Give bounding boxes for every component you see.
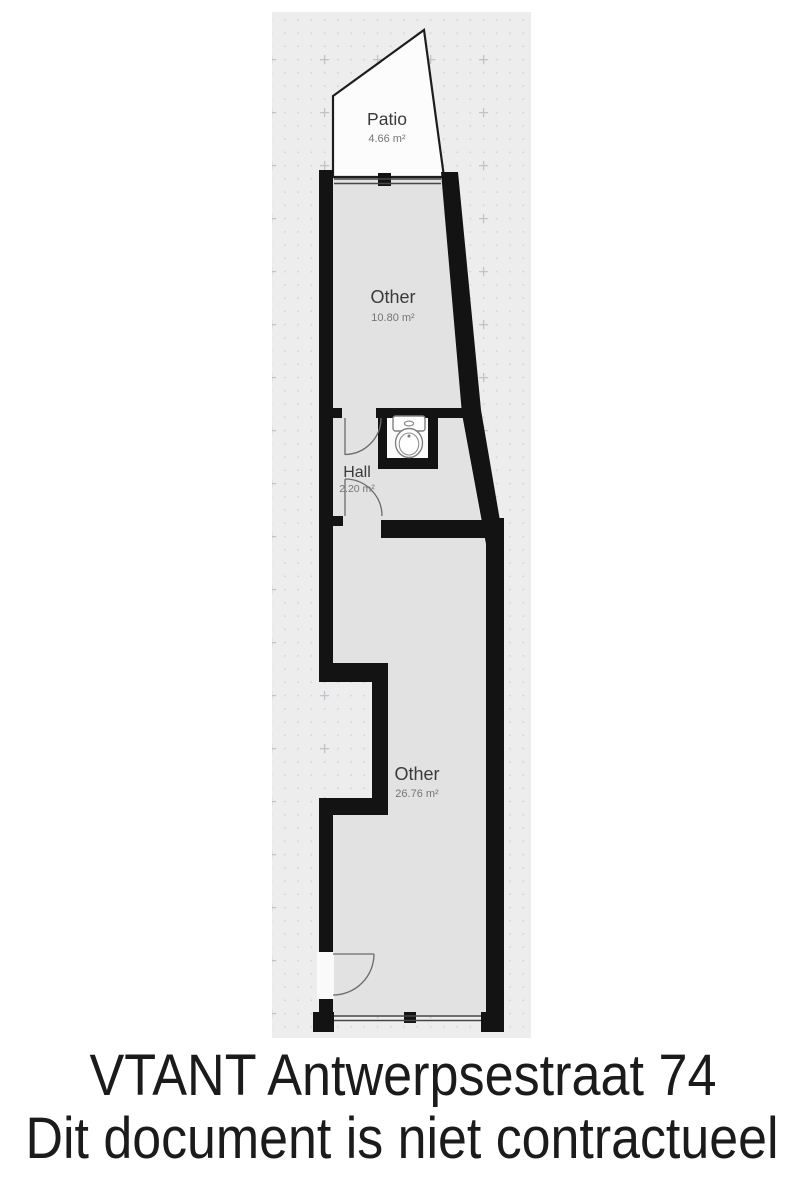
floorplan-page: Patio 4.66 m² Other 10.80 m² Hall 2.20 m… <box>0 0 802 1200</box>
window-bottom-tick <box>404 1012 416 1023</box>
wall-right-vertical <box>486 527 504 1016</box>
wall-wc-left <box>378 408 387 464</box>
patio-area: 4.66 m² <box>368 133 406 145</box>
wall-hall-bottom-jamb <box>333 516 343 526</box>
other-lower-area: 26.76 m² <box>395 788 439 800</box>
floorplan-svg: Patio 4.66 m² Other 10.80 m² Hall 2.20 m… <box>0 0 802 1200</box>
toilet-icon <box>393 416 425 458</box>
other-upper-area: 10.80 m² <box>371 312 415 324</box>
wall-left-upper <box>319 170 333 682</box>
footer-line2: Dit document is niet contractueel <box>26 1106 779 1171</box>
hall-label: Hall <box>343 464 371 481</box>
footer-line1: VTANT Antwerpsestraat 74 <box>90 1043 717 1108</box>
hall-area: 2.20 m² <box>339 483 375 495</box>
other-lower-label: Other <box>394 764 439 784</box>
wall-recess-right <box>372 663 388 815</box>
wall-corner-bottom-left <box>313 1012 334 1032</box>
wall-hall-bottom <box>381 520 490 538</box>
footer: VTANT Antwerpsestraat 74 Dit document is… <box>26 1043 779 1171</box>
other-upper-label: Other <box>370 287 415 307</box>
wall-hall-top-jamb <box>333 408 342 418</box>
wall-wc-bottom <box>378 458 438 469</box>
wall-wc-right <box>428 408 438 466</box>
patio-label: Patio <box>367 109 407 129</box>
wall-right-step <box>495 518 504 544</box>
wall-left-mid <box>319 798 333 952</box>
